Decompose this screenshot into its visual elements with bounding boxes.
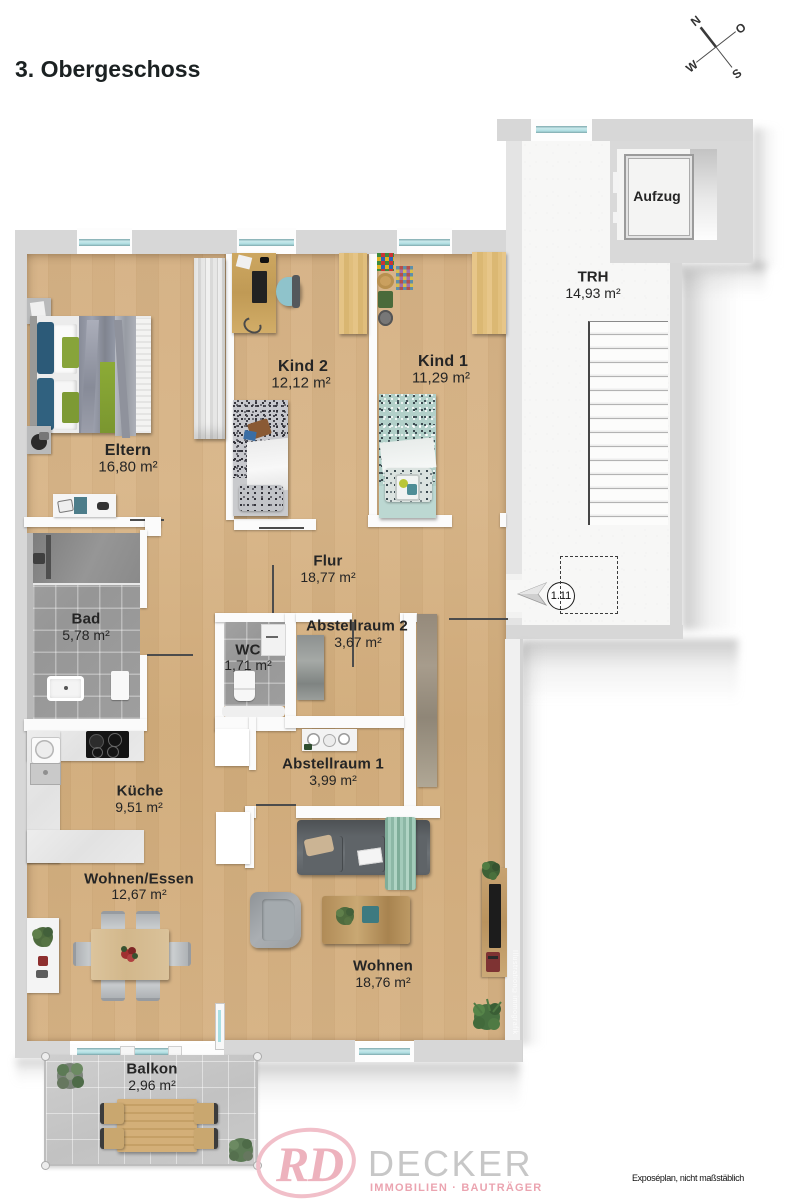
svg-text:D: D bbox=[307, 1136, 344, 1192]
svg-text:S: S bbox=[729, 66, 744, 82]
svg-text:R: R bbox=[275, 1136, 309, 1192]
svg-text:O: O bbox=[733, 20, 749, 37]
svg-text:N: N bbox=[688, 13, 703, 29]
svg-text:W: W bbox=[683, 57, 701, 75]
